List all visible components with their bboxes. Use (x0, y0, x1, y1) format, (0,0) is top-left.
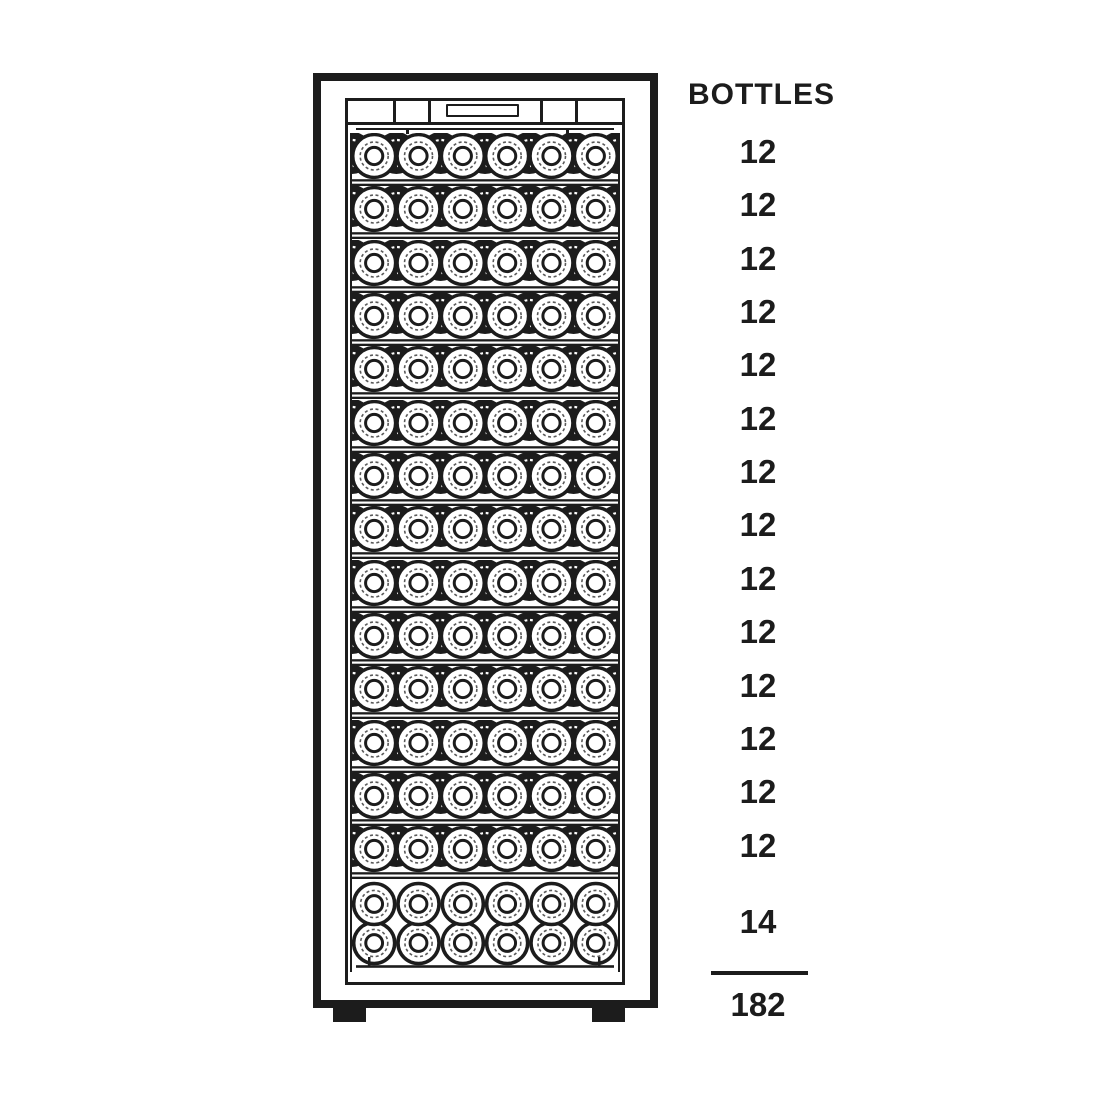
shelf-line (352, 877, 618, 879)
base-plate (356, 965, 614, 968)
shelf-count: 12 (688, 291, 828, 333)
shelf-line (352, 286, 618, 288)
shelf-line (352, 339, 618, 341)
shelf-line (352, 393, 618, 395)
counts-header: BOTTLES (688, 74, 828, 116)
shelf-line (352, 553, 618, 555)
shelf-line (352, 606, 618, 608)
cabinet-foot-left (333, 1005, 366, 1022)
shelf-row (352, 453, 618, 506)
shelf-line (352, 873, 618, 875)
shelf-row (352, 560, 618, 613)
total-count: 182 (688, 984, 828, 1026)
shelf-count: 12 (688, 771, 828, 813)
shelf-line (352, 179, 618, 181)
shelf-count: 12 (688, 238, 828, 280)
shelf-count: 12 (688, 611, 828, 653)
base-notch (368, 957, 371, 967)
shelf-row (352, 186, 618, 239)
shelf-line (352, 499, 618, 501)
sum-divider (711, 971, 808, 975)
bottom-compartment (352, 880, 618, 972)
shelf-row (352, 666, 618, 719)
shelf-row (352, 400, 618, 453)
shelf-count: 12 (688, 184, 828, 226)
cabinet-foot-right (592, 1005, 625, 1022)
panel-divider (575, 101, 578, 122)
shelf-line (352, 819, 618, 821)
panel-divider (540, 101, 543, 122)
panel-divider (393, 101, 396, 122)
shelf-count: 12 (688, 451, 828, 493)
base-notch (598, 957, 601, 967)
control-panel-display (446, 104, 519, 117)
control-panel (348, 101, 622, 125)
shelf-count: 12 (688, 131, 828, 173)
shelf-count: 12 (688, 344, 828, 386)
shelf-count: 12 (688, 398, 828, 440)
shelf-count: 12 (688, 718, 828, 760)
cabinet-interior (350, 133, 620, 972)
cabinet-door (345, 98, 625, 985)
shelf-count: 12 (688, 665, 828, 707)
shelf-row (352, 720, 618, 773)
shelf-line (352, 766, 618, 768)
shelf-line (352, 446, 618, 448)
bottom-count: 14 (688, 901, 828, 943)
rail-line (356, 128, 614, 130)
shelf-line (352, 659, 618, 661)
wine-cabinet (313, 73, 658, 1008)
shelf-row (352, 773, 618, 826)
ceiling-rail (354, 125, 616, 133)
shelf-count: 12 (688, 504, 828, 546)
shelf-count: 12 (688, 825, 828, 867)
shelf-row (352, 133, 618, 186)
shelf-row (352, 613, 618, 666)
shelf-row (352, 293, 618, 346)
shelf-row (352, 346, 618, 399)
shelf-row (352, 506, 618, 559)
panel-divider (428, 101, 431, 122)
shelf-line (352, 713, 618, 715)
shelf-row (352, 826, 618, 879)
shelf-count: 12 (688, 558, 828, 600)
shelf-row (352, 240, 618, 293)
shelf-line (352, 233, 618, 235)
diagram-canvas: BOTTLES 121212121212121212121212121214 1… (0, 0, 1100, 1100)
